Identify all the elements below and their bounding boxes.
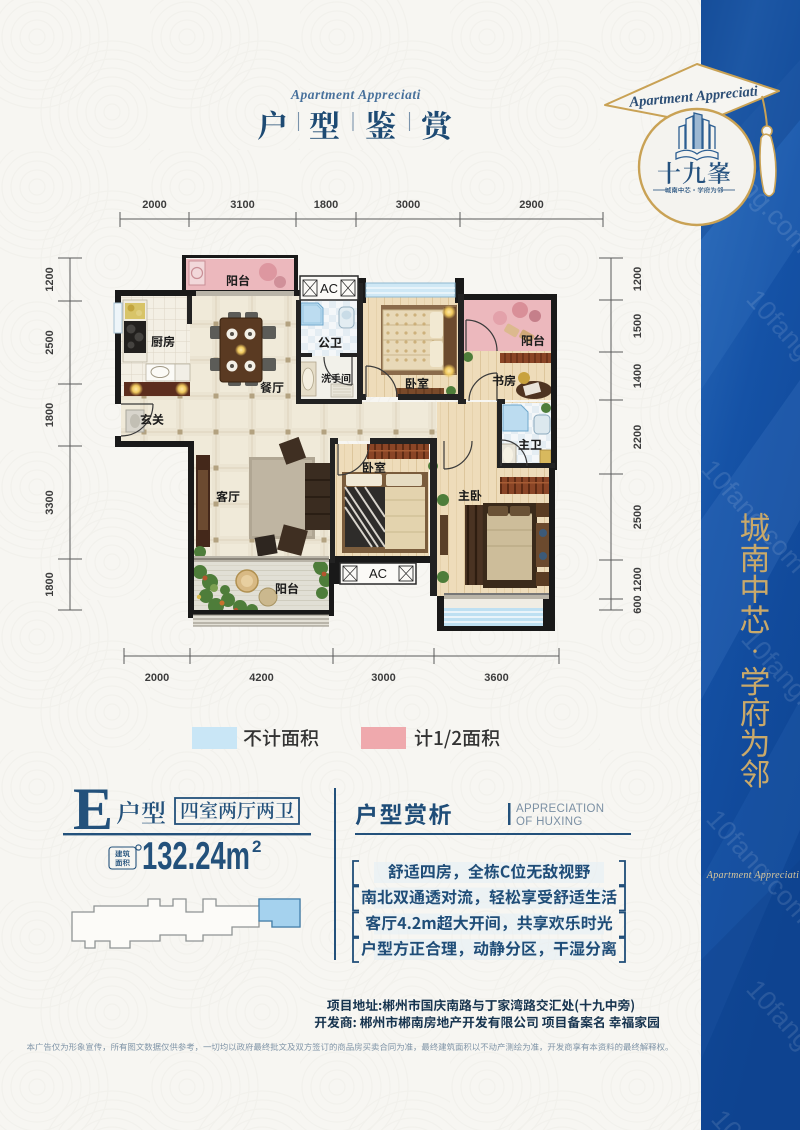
svg-text:1800: 1800: [44, 403, 56, 427]
svg-text:132.24m: 132.24m: [142, 835, 250, 878]
svg-text:3300: 3300: [44, 490, 56, 514]
svg-text:1200: 1200: [632, 267, 644, 291]
svg-text:2500: 2500: [632, 505, 644, 529]
svg-text:1800: 1800: [44, 572, 56, 596]
svg-text:1400: 1400: [632, 364, 644, 388]
svg-text:3000: 3000: [371, 672, 395, 684]
svg-text:Apartment Appreciati: Apartment Appreciati: [706, 870, 799, 881]
svg-text:600: 600: [632, 595, 644, 613]
svg-text:2000: 2000: [145, 672, 169, 684]
svg-text:2900: 2900: [519, 199, 543, 211]
svg-text:E: E: [73, 776, 113, 842]
svg-text:1200: 1200: [44, 267, 56, 291]
svg-text:3600: 3600: [484, 672, 508, 684]
svg-text:1200: 1200: [632, 567, 644, 591]
svg-text:2200: 2200: [632, 425, 644, 449]
svg-text:4200: 4200: [249, 672, 273, 684]
svg-text:APPRECIATION: APPRECIATION: [516, 803, 604, 815]
svg-text:1500: 1500: [632, 314, 644, 338]
svg-text:AC: AC: [320, 281, 338, 296]
svg-text:1800: 1800: [314, 199, 338, 211]
svg-text:2000: 2000: [142, 199, 166, 211]
svg-text:OF HUXING: OF HUXING: [516, 816, 583, 828]
svg-text:AC: AC: [369, 566, 387, 581]
svg-text:2500: 2500: [44, 330, 56, 354]
svg-text:2: 2: [252, 837, 261, 856]
svg-text:Apartment Appreciati: Apartment Appreciati: [290, 87, 421, 102]
svg-text:3100: 3100: [230, 199, 254, 211]
svg-text:3000: 3000: [396, 199, 420, 211]
